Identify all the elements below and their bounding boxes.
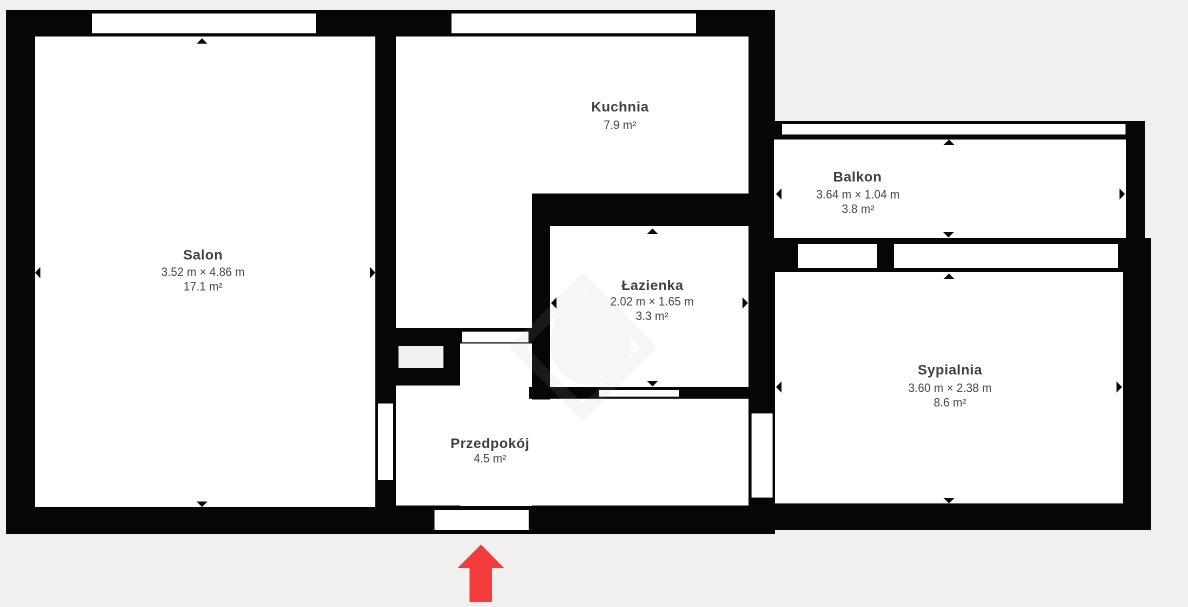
- svg-text:Kuchnia: Kuchnia: [591, 99, 649, 115]
- svg-text:Salon: Salon: [183, 247, 223, 263]
- svg-text:3.8 m²: 3.8 m²: [842, 204, 875, 216]
- svg-text:8.6 m²: 8.6 m²: [934, 398, 967, 410]
- svg-text:3.3 m²: 3.3 m²: [636, 311, 669, 323]
- svg-text:Przedpokój: Przedpokój: [451, 435, 530, 451]
- svg-text:Sypialnia: Sypialnia: [918, 362, 983, 378]
- svg-text:3.52 m × 4.86 m: 3.52 m × 4.86 m: [161, 267, 244, 279]
- svg-text:Łazienka: Łazienka: [622, 277, 684, 293]
- svg-text:4.5 m²: 4.5 m²: [474, 454, 507, 466]
- svg-text:3.60 m × 2.38 m: 3.60 m × 2.38 m: [908, 383, 991, 395]
- svg-text:17.1 m²: 17.1 m²: [184, 282, 223, 294]
- svg-text:Balkon: Balkon: [833, 169, 882, 185]
- svg-text:2.02 m × 1.65 m: 2.02 m × 1.65 m: [610, 297, 693, 309]
- svg-text:7.9 m²: 7.9 m²: [604, 120, 637, 132]
- svg-text:3.64 m × 1.04 m: 3.64 m × 1.04 m: [816, 190, 899, 202]
